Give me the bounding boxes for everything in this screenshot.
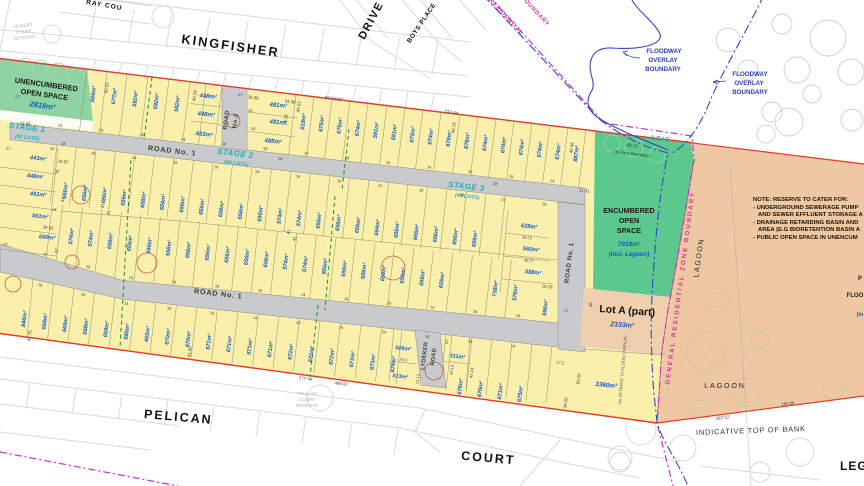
svg-text:- DRAINAGE RETARDING BASIN AND: - DRAINAGE RETARDING BASIN AND [753,220,858,226]
svg-text:FLOODWAY: FLOODWAY [646,48,682,55]
svg-text:ENCUMBERED: ENCUMBERED [603,206,655,215]
svg-text:RESERVE: RESERVE [296,403,318,408]
svg-text:LAGOON: LAGOON [704,381,746,390]
svg-text:FLOODWAY: FLOODWAY [732,71,768,78]
svg-text:7918m²: 7918m² [618,241,642,248]
svg-text:OVERLAY: OVERLAY [648,57,678,64]
svg-text:OVERLAY: OVERLAY [734,80,764,87]
svg-text:FLOO: FLOO [847,293,864,299]
svg-text:COURT: COURT [299,397,315,402]
svg-text:BOUNDARY: BOUNDARY [645,66,681,73]
svg-text:P: P [858,276,862,282]
svg-text:- PUBLIC OPEN SPACE IN UNENCUM: - PUBLIC OPEN SPACE IN UNENCUM [753,235,858,241]
svg-text:(in: (in [857,312,864,318]
svg-text:24.3: 24.3 [399,357,408,363]
svg-text:- UNDERGROUND SEWERAGE PUMP: - UNDERGROUND SEWERAGE PUMP [753,205,858,211]
svg-text:SPACE: SPACE [617,226,641,235]
svg-text:OPEN: OPEN [619,216,639,225]
svg-text:PELICAN: PELICAN [297,391,317,396]
svg-text:AREA (E.G BIORETENTION BASIN A: AREA (E.G BIORETENTION BASIN A [758,227,861,233]
svg-text:NOTE: RESERVE TO CATER FOR:: NOTE: RESERVE TO CATER FOR: [753,197,848,203]
svg-text:AND SEWER EFFLUENT STORAGE A: AND SEWER EFFLUENT STORAGE A [758,212,863,218]
svg-text:BOUNDARY: BOUNDARY [732,89,768,96]
svg-text:(incl. Lagoon): (incl. Lagoon) [609,251,650,258]
svg-text:LEGEND: LEGEND [840,459,864,473]
